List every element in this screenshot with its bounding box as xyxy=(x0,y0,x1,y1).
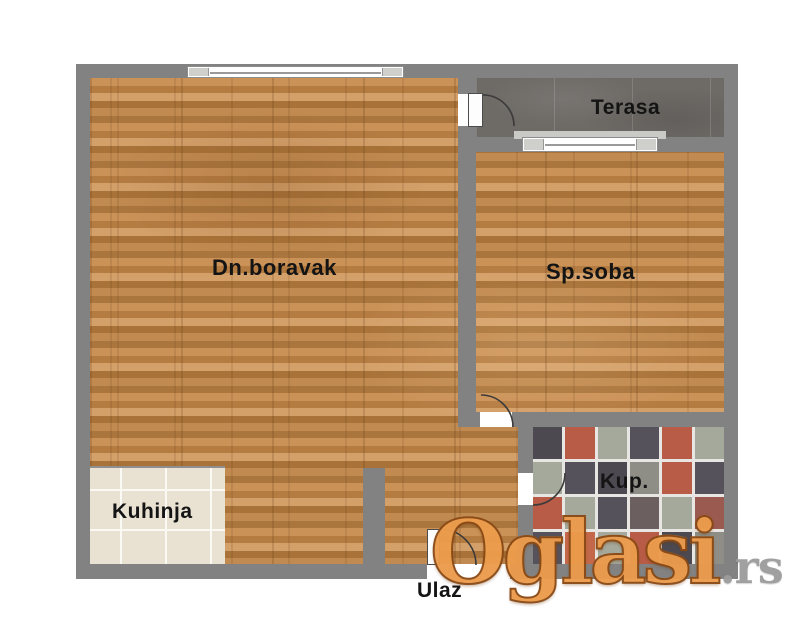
wall-outer-bottom xyxy=(76,564,738,579)
window-frame-cap xyxy=(382,68,402,76)
window-frame-cap xyxy=(189,68,209,76)
terrace-door-leaf xyxy=(468,93,483,127)
wall-outer-left xyxy=(76,64,90,579)
wall-outer-top xyxy=(76,64,738,78)
wall-outer-right xyxy=(724,64,738,579)
bathroom-label: Kup. xyxy=(600,470,649,494)
terrace-label: Terasa xyxy=(591,96,660,120)
living-room-window xyxy=(187,66,404,78)
bedroom-door-opening xyxy=(480,412,512,427)
window-glass-line xyxy=(545,144,635,146)
window-glass-line xyxy=(210,72,381,74)
entrance-label: Ulaz xyxy=(417,579,462,603)
window-frame-cap xyxy=(524,139,544,150)
kitchen-label: Kuhinja xyxy=(112,500,193,524)
bathroom-mosaic xyxy=(533,427,724,564)
window-frame-cap xyxy=(636,139,656,150)
wall-living-hall xyxy=(363,468,385,564)
living-room-label: Dn.boravak xyxy=(212,255,337,281)
bedroom-label: Sp.soba xyxy=(546,259,635,285)
bedroom-window xyxy=(522,137,658,152)
entrance-door-opening xyxy=(427,564,510,579)
bathroom-door-opening xyxy=(518,473,533,505)
wall-living-bedroom xyxy=(458,78,476,427)
floorplan-image: Dn.boravak Sp.soba Terasa Kuhinja Kup. U… xyxy=(0,0,800,641)
entrance-door-leaf xyxy=(427,529,440,565)
